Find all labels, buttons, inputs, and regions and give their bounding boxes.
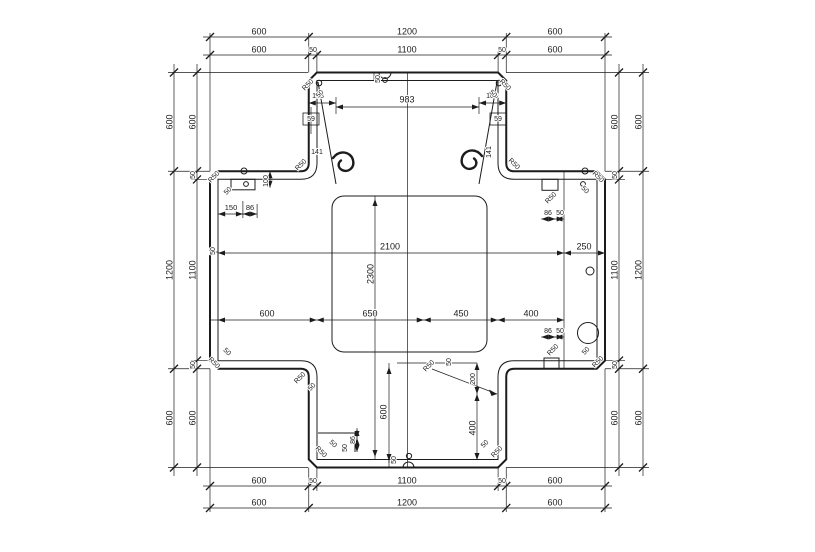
dim-label: 400 <box>467 420 477 435</box>
dim-label: 1200 <box>397 497 417 507</box>
dim-label: 600 <box>164 410 174 425</box>
lifting-hook-left <box>333 152 353 170</box>
dim-label: 150 <box>225 203 238 212</box>
dim-label: 983 <box>399 94 414 104</box>
dim-label: R50 <box>591 170 605 184</box>
dim-label: 50 <box>498 478 506 485</box>
dim-label: R50 <box>314 445 328 459</box>
dim-label: 600 <box>187 410 197 425</box>
dim-arrowhead <box>549 217 556 222</box>
dim-arrowhead <box>329 101 336 106</box>
dim-label: 600 <box>547 497 562 507</box>
dim-arrowhead <box>236 212 243 217</box>
dim-label: 50 <box>612 171 619 179</box>
dim-label: 1100 <box>397 475 416 485</box>
dim-label: 2300 <box>365 264 375 284</box>
dim-label: 141 <box>311 149 323 156</box>
dim-arrowhead <box>310 318 317 323</box>
dim-arrowhead <box>541 335 548 340</box>
dim-arrowhead <box>479 101 486 106</box>
dim-label: 100 <box>263 175 270 187</box>
dim-label: 600 <box>547 475 562 485</box>
dim-arrowhead <box>250 212 257 217</box>
dim-arrowhead <box>598 251 605 256</box>
dim-label: 86 <box>544 210 552 217</box>
dim-label: 50 <box>190 361 197 369</box>
dim-label: 400 <box>523 308 538 318</box>
dim-arrowhead <box>472 105 479 110</box>
dim-label: 1100 <box>609 260 619 279</box>
lifting-hook-right <box>462 150 482 168</box>
left-arm-notch <box>231 179 255 190</box>
dim-label: 1100 <box>397 44 416 54</box>
technical-drawing: 6001200600600501100506006005011005060060… <box>0 0 815 552</box>
dim-label: R50 <box>422 359 436 373</box>
dim-line <box>432 369 497 394</box>
dim-label: 250 <box>576 241 591 251</box>
dim-label: R50 <box>293 371 307 385</box>
dim-label: 50 <box>309 478 317 485</box>
dim-label: 600 <box>609 410 619 425</box>
dim-label: 1200 <box>164 260 174 280</box>
dim-arrowhead <box>417 318 424 323</box>
dim-arrowhead <box>475 394 480 401</box>
dim-label: R50 <box>544 191 558 205</box>
dim-arrowhead <box>475 387 480 394</box>
dim-label: 50 <box>222 347 233 358</box>
dim-arrowhead <box>387 367 392 374</box>
dimension-ticks <box>170 33 647 512</box>
hole-right-small <box>586 267 594 275</box>
dim-label: 50 <box>309 47 317 54</box>
dim-arrowhead <box>424 318 431 323</box>
dim-arrowhead <box>475 453 480 460</box>
dim-arrowhead <box>499 101 506 106</box>
dim-arrowhead <box>475 363 480 370</box>
dim-arrowhead <box>557 251 564 256</box>
dim-label: R50 <box>498 78 512 92</box>
dim-arrowhead <box>336 105 343 110</box>
dim-label: 86 <box>246 203 254 212</box>
dim-arrowhead <box>373 450 378 457</box>
dim-label: 600 <box>547 26 562 36</box>
dim-label: 600 <box>378 404 388 419</box>
dim-label: 50 <box>612 361 619 369</box>
dim-label: 600 <box>259 308 274 318</box>
dim-arrowhead <box>218 251 225 256</box>
dimension-arrows <box>218 101 605 462</box>
dim-arrowhead <box>557 318 564 323</box>
dim-label: 600 <box>251 26 266 36</box>
dim-label: 86 <box>350 436 357 444</box>
center-opening <box>332 196 487 352</box>
dim-label: 2100 <box>380 241 400 251</box>
dimension-labels: 6001200600600501100506006005011005060060… <box>164 26 643 507</box>
dim-label: 50 <box>210 247 217 255</box>
drawing-canvas: 6001200600600501100506006005011005060060… <box>0 0 815 552</box>
dim-label: 59 <box>494 116 502 123</box>
dim-label: 141 <box>486 146 493 158</box>
right-arm-top-notch <box>542 179 558 190</box>
dim-label: 600 <box>251 44 266 54</box>
dim-label: 600 <box>633 114 643 129</box>
dim-label: R50 <box>301 78 315 92</box>
dim-arrowhead <box>498 318 505 323</box>
dim-label: 50 <box>446 358 453 366</box>
dim-label: R50 <box>546 343 560 357</box>
dim-arrowhead <box>564 251 571 256</box>
dim-label: 50 <box>375 75 382 83</box>
dim-label: 50 <box>556 328 564 335</box>
dim-label: R50 <box>591 355 605 369</box>
dim-label: 50 <box>328 439 339 450</box>
dim-label: 50 <box>223 186 234 197</box>
dim-label: 1100 <box>187 260 197 279</box>
right-arm-bottom-notch <box>544 358 559 369</box>
dim-arrowhead <box>557 335 564 340</box>
dim-label: 450 <box>453 308 468 318</box>
dimension-lines <box>168 33 649 512</box>
dim-label: 50 <box>190 171 197 179</box>
dim-label: R50 <box>490 445 504 459</box>
dim-label: 50 <box>342 444 349 452</box>
dim-label: 600 <box>187 114 197 129</box>
dim-arrowhead <box>218 212 225 217</box>
dim-arrowhead <box>218 318 225 323</box>
dim-arrowhead <box>373 199 378 206</box>
dim-label: 50 <box>556 210 564 217</box>
dim-arrowhead <box>309 101 316 106</box>
dim-label: 50 <box>581 346 592 357</box>
dim-label: 600 <box>547 44 562 54</box>
dim-label: 600 <box>251 475 266 485</box>
dim-arrowhead <box>541 217 548 222</box>
dim-label: 600 <box>633 410 643 425</box>
dim-label: 86 <box>544 328 552 335</box>
hole-left-arm-b <box>244 182 249 187</box>
dim-arrowhead <box>557 217 564 222</box>
dim-label: 1200 <box>397 26 417 36</box>
dim-label: 50 <box>580 185 591 196</box>
dim-label: 50 <box>498 47 506 54</box>
dim-label: 600 <box>609 114 619 129</box>
dim-label: 650 <box>362 308 377 318</box>
dim-arrowhead <box>491 318 498 323</box>
dim-arrowhead <box>317 318 324 323</box>
hole-right-large <box>578 323 599 344</box>
dim-arrowhead <box>243 212 250 217</box>
dim-label: 59 <box>307 116 315 123</box>
dim-label: 600 <box>251 497 266 507</box>
dim-label: 50 <box>480 439 491 450</box>
dim-label: 1200 <box>633 260 643 280</box>
dim-label: R50 <box>207 170 221 184</box>
dim-label: 200 <box>470 373 477 385</box>
dim-label: 600 <box>164 114 174 129</box>
dim-arrowhead <box>549 335 556 340</box>
dim-label: 50 <box>391 456 398 464</box>
